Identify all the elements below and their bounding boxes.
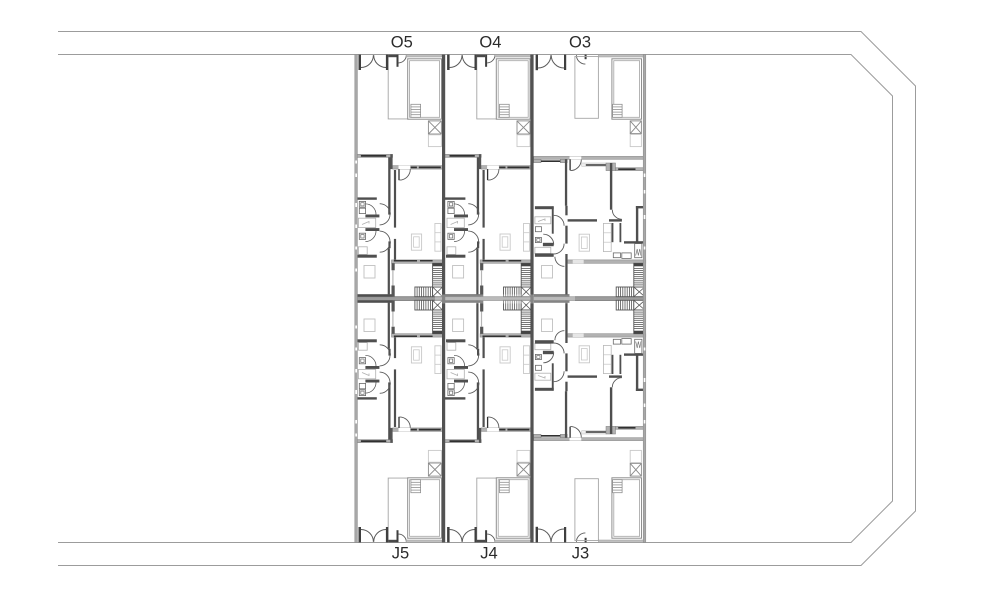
svg-text:O5: O5 <box>391 33 413 51</box>
svg-text:O3: O3 <box>569 33 591 51</box>
svg-text:J4: J4 <box>480 545 497 563</box>
svg-text:J5: J5 <box>392 545 409 563</box>
svg-text:J3: J3 <box>572 545 589 563</box>
svg-text:O4: O4 <box>479 33 501 51</box>
